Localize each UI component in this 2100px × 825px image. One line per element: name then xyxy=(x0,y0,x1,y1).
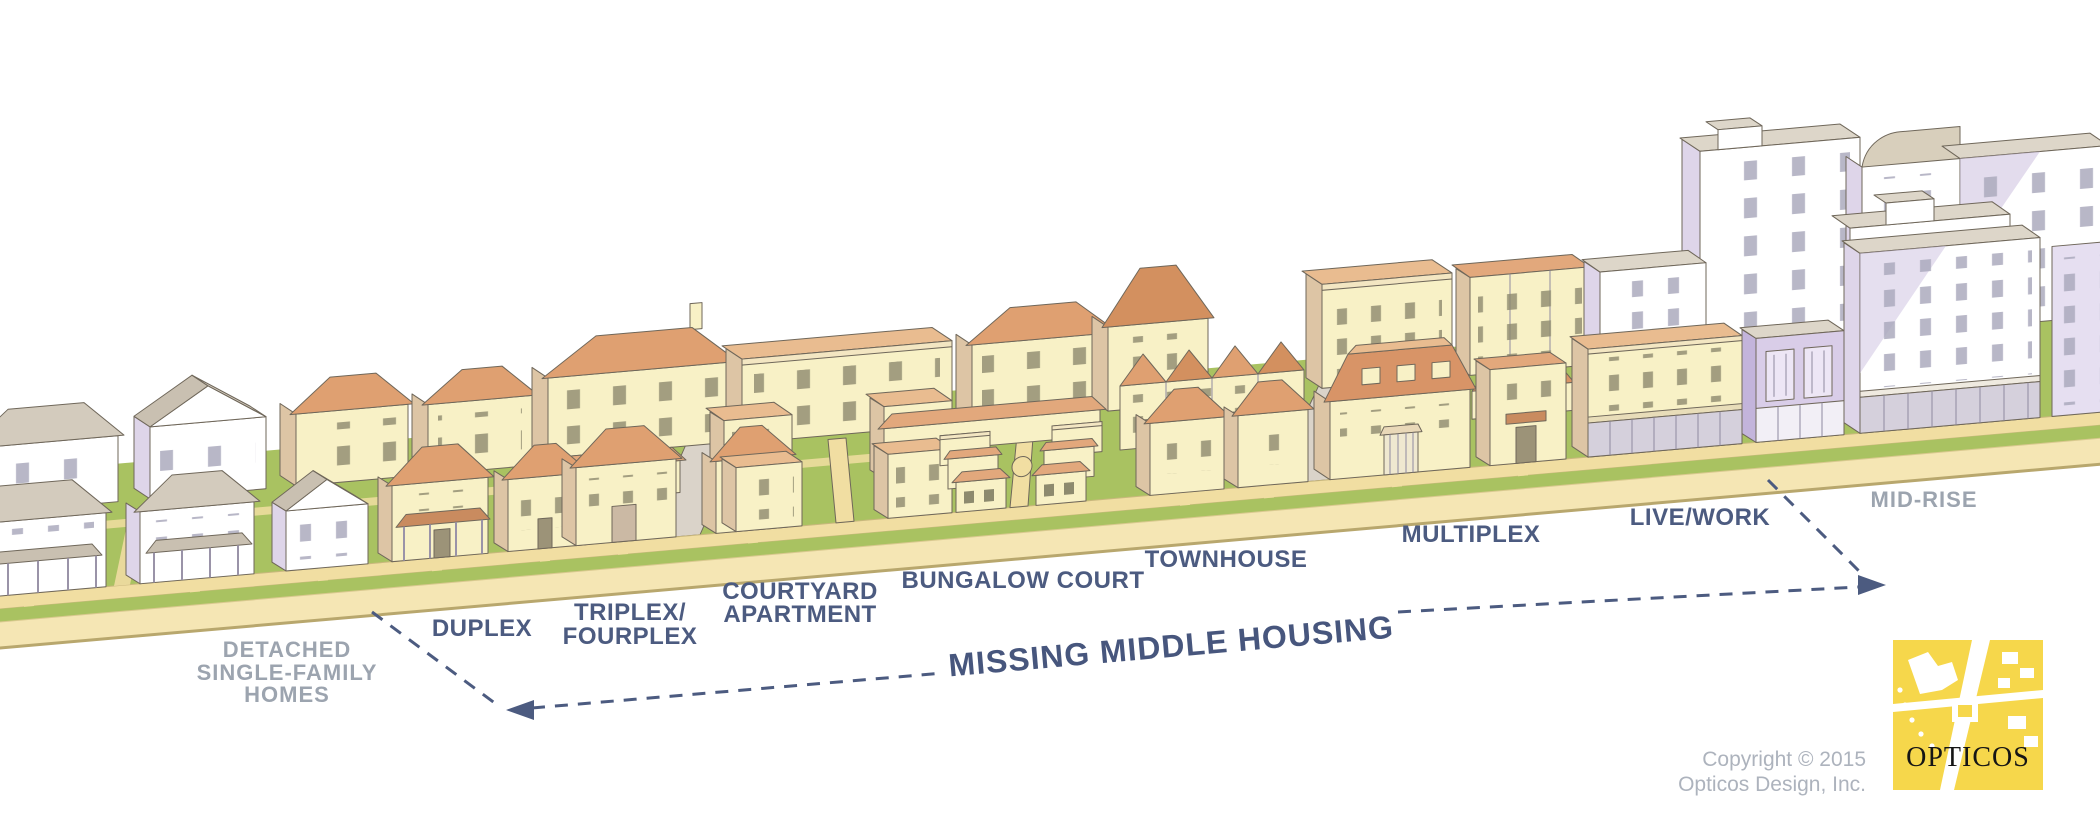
diagram-canvas: MISSING MIDDLE HOUSING DETACHED SINGLE-F… xyxy=(0,0,2100,825)
arrowhead-right-icon xyxy=(1858,575,1886,595)
label-mid-rise: MID-RISE xyxy=(1871,487,1978,512)
svg-text:HOMES: HOMES xyxy=(244,682,330,707)
label-live-work: LIVE/WORK xyxy=(1630,504,1771,531)
credit-line-1: Copyright © 2015 xyxy=(1702,748,1866,771)
svg-text:APARTMENT: APARTMENT xyxy=(723,601,876,628)
logo-wordmark: OPTICOS xyxy=(1906,742,2030,773)
svg-text:TRIPLEX/: TRIPLEX/ xyxy=(574,599,686,626)
credit-line-2: Opticos Design, Inc. xyxy=(1678,773,1866,796)
label-detached-single-family-homes: DETACHED SINGLE-FAMILY HOMES xyxy=(197,637,378,707)
label-triplex-fourplex: TRIPLEX/ FOURPLEX xyxy=(563,599,698,650)
svg-text:FOURPLEX: FOURPLEX xyxy=(563,623,698,650)
label-courtyard-apartment: COURTYARD APARTMENT xyxy=(722,578,878,628)
missing-middle-housing-diagram: MISSING MIDDLE HOUSING DETACHED SINGLE-F… xyxy=(0,0,2100,825)
bracket-diagonal-right xyxy=(1768,480,1864,576)
arrowhead-left-icon xyxy=(506,700,534,720)
copyright-credit: Copyright © 2015 Opticos Design, Inc. xyxy=(1678,748,1866,796)
opticos-logo: OPTICOS xyxy=(1893,640,2043,790)
cluster-mid-rise-front xyxy=(1842,217,2100,435)
bracket-line-right xyxy=(1398,587,1858,612)
cluster-livework-front xyxy=(1570,313,1844,459)
bracket-line-left xyxy=(532,673,944,708)
diagram-title: MISSING MIDDLE HOUSING xyxy=(947,609,1395,684)
label-townhouse: TOWNHOUSE xyxy=(1145,546,1308,573)
label-multiplex: MULTIPLEX xyxy=(1402,521,1541,548)
logo-courtyard-detail xyxy=(1958,705,1972,717)
label-bungalow-court: BUNGALOW COURT xyxy=(902,567,1145,594)
label-duplex: DUPLEX xyxy=(432,615,532,642)
svg-text:DETACHED: DETACHED xyxy=(223,637,352,662)
